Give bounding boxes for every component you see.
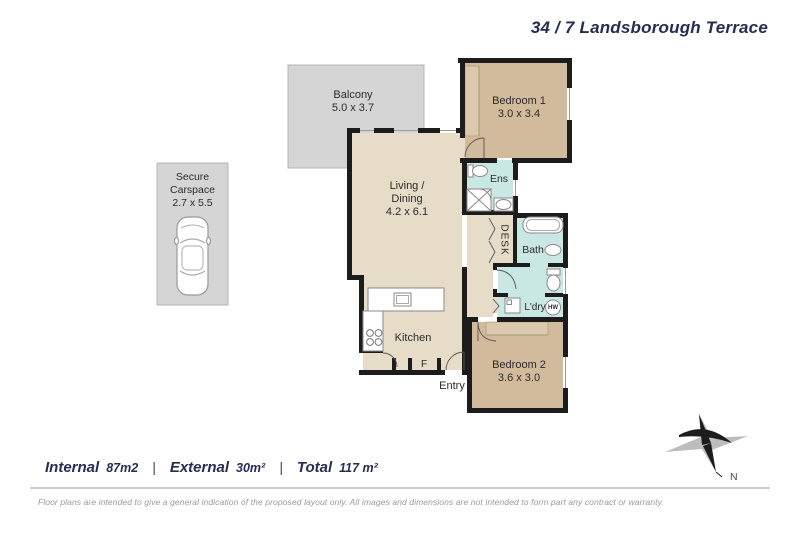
living-label: Living / Dining 4.2 x 6.1 xyxy=(352,180,462,219)
ens-sink-icon xyxy=(494,198,513,211)
ens-shower-icon xyxy=(467,189,491,211)
carspace-label: Secure Carspace 2.7 x 5.5 xyxy=(157,171,228,210)
bathtub-icon xyxy=(523,217,563,233)
hw-label: HW xyxy=(548,305,558,311)
washer-icon xyxy=(505,298,520,313)
total-label: Total xyxy=(297,459,332,476)
external-label: External xyxy=(170,459,229,476)
separator: | xyxy=(152,459,156,475)
fridge-label: F xyxy=(416,358,432,371)
car-icon xyxy=(175,217,211,295)
external-value: 30m² xyxy=(236,461,265,475)
toilet-icon xyxy=(547,269,560,291)
disclaimer-text: Floor plans are intended to give a gener… xyxy=(38,497,664,507)
page-title: 34 / 7 Landsborough Terrace xyxy=(531,18,768,38)
compass-rose-icon xyxy=(665,414,748,477)
total-value: 117 m² xyxy=(339,461,378,475)
bedroom1-label: Bedroom 1 3.0 x 3.4 xyxy=(464,95,574,121)
area-summary: Internal 87m2 | External 30m² | Total 11… xyxy=(45,459,378,476)
ldry-label: L'dry xyxy=(522,301,548,314)
kitchen-bench-icon xyxy=(368,288,444,311)
ens-label: Ens xyxy=(484,173,514,186)
floorplan-page: 34 / 7 Landsborough Terrace Balcony 5.0 … xyxy=(0,0,800,534)
divider-line xyxy=(30,487,770,489)
internal-label: Internal xyxy=(45,459,99,476)
kitchen-label: Kitchen xyxy=(388,332,438,345)
compass-north-label: N xyxy=(730,471,738,483)
floorplan-drawing xyxy=(0,0,800,534)
balcony-label: Balcony 5.0 x 3.7 xyxy=(288,89,418,115)
bath-label: Bath xyxy=(517,244,549,257)
internal-value: 87m2 xyxy=(106,461,138,475)
desk-label: DESK xyxy=(499,224,510,255)
separator: | xyxy=(279,459,283,475)
bedroom2-label: Bedroom 2 3.6 x 3.0 xyxy=(464,359,574,385)
